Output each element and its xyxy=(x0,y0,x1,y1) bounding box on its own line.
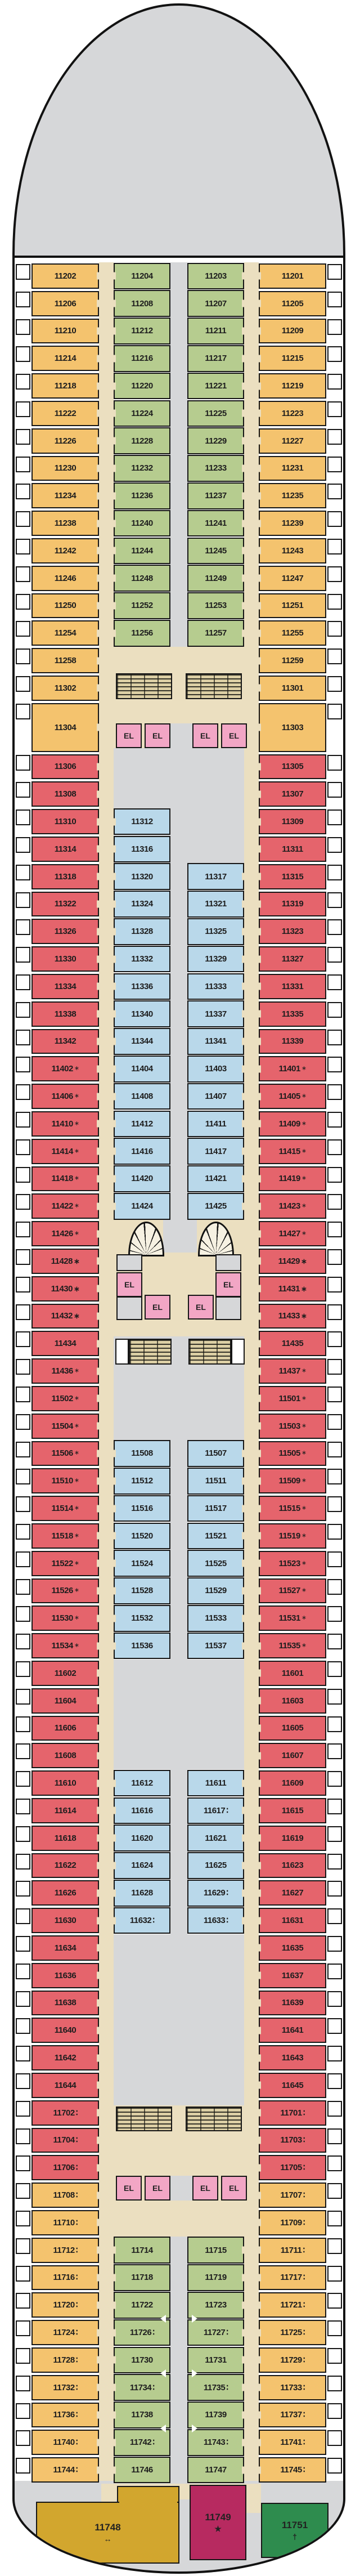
cabin: 11216 xyxy=(114,345,170,372)
cabin: 11426∗ xyxy=(31,1221,99,1246)
cabin-symbol-ast2: ∗ xyxy=(74,1285,79,1293)
cabin: 11502∗ xyxy=(31,1386,99,1411)
balcony xyxy=(16,319,30,335)
cabin-number: 11526 xyxy=(51,1586,73,1595)
cabin-symbol-ast: ∗ xyxy=(74,1505,79,1511)
cabin-number: 11247 xyxy=(282,574,303,583)
cabin-number: 11316 xyxy=(131,845,152,853)
cabin-number: 11605 xyxy=(282,1724,303,1732)
balcony xyxy=(327,1606,342,1622)
cabin: 11638 xyxy=(31,1991,99,2016)
cabin: 11601 xyxy=(259,1661,326,1686)
balcony xyxy=(327,865,342,880)
cabin-symbol-ast: ∗ xyxy=(74,1175,79,1182)
balcony xyxy=(16,2320,30,2336)
cabin: 11256 xyxy=(114,620,170,647)
cabin: 11522∗ xyxy=(31,1551,99,1576)
cabin-symbol-bidir: ↔ xyxy=(104,2534,112,2543)
cabin-symbol-ast: ∗ xyxy=(301,1203,307,1209)
cabin-number: 11741 xyxy=(280,2438,301,2447)
cabin: 11234 xyxy=(31,483,99,508)
balcony xyxy=(16,1689,30,1705)
cabin: 11707∶ xyxy=(259,2183,326,2208)
balcony xyxy=(327,2155,342,2171)
cabin-number: 11239 xyxy=(282,519,303,527)
cabin: 11211 xyxy=(187,317,244,345)
balcony xyxy=(327,1496,342,1512)
stairs xyxy=(188,1339,231,1365)
cabin-symbol-ast: ∗ xyxy=(301,1231,307,1237)
balcony xyxy=(16,1771,30,1787)
cabin-number: 11252 xyxy=(131,601,152,610)
cabin-number: 11726 xyxy=(130,2328,151,2337)
cabin-number: 11257 xyxy=(205,629,226,637)
cabin-number: 11235 xyxy=(282,491,303,500)
balcony xyxy=(327,1799,342,1814)
cabin: 11231 xyxy=(259,456,326,481)
cabin: 11253 xyxy=(187,592,244,619)
cabin: 11704∶ xyxy=(31,2128,99,2153)
cabin: 11434 xyxy=(31,1331,99,1356)
cabin-number: 11409 xyxy=(278,1120,300,1128)
balcony xyxy=(327,1524,342,1540)
cabin: 11232 xyxy=(114,455,170,482)
cabin-number: 11509 xyxy=(278,1477,300,1485)
cabin-number: 11206 xyxy=(55,299,76,308)
stairs xyxy=(116,2107,172,2131)
balcony xyxy=(327,2376,342,2391)
cabin-number: 11214 xyxy=(55,354,76,363)
cabin-symbol-berth: ∶ xyxy=(76,2219,78,2227)
cabin: 11252 xyxy=(114,592,170,619)
balcony xyxy=(327,1881,342,1897)
balcony xyxy=(327,511,342,527)
cabin: 11624 xyxy=(114,1852,170,1879)
cabin: 11415∗ xyxy=(259,1139,326,1164)
cabin: 11645 xyxy=(259,2073,326,2098)
balcony xyxy=(16,401,30,417)
cabin-number: 11317 xyxy=(205,873,226,881)
cabin-number: 11506 xyxy=(51,1449,73,1457)
cabin-number: 11714 xyxy=(131,2246,152,2255)
cabin-number: 11326 xyxy=(55,927,76,936)
cabin-number: 11740 xyxy=(53,2438,74,2447)
cabin: 11207 xyxy=(187,290,244,317)
balcony xyxy=(327,1167,342,1183)
cabin-number: 11707 xyxy=(280,2191,301,2199)
balcony xyxy=(16,865,30,880)
cabin: 11608 xyxy=(31,1743,99,1768)
balcony xyxy=(16,1139,30,1155)
cabin-number: 11514 xyxy=(51,1504,73,1513)
cabin-symbol-ast: ∗ xyxy=(74,1587,79,1594)
balcony xyxy=(16,2211,30,2226)
cabin-number: 11226 xyxy=(55,437,76,445)
balcony xyxy=(16,2293,30,2309)
cabin: 11516 xyxy=(114,1495,170,1522)
cabin-number: 11404 xyxy=(131,1065,152,1073)
cabin: 11431∗ xyxy=(259,1276,326,1302)
balcony xyxy=(327,1139,342,1155)
cabin-symbol-ast: ∗ xyxy=(301,1450,307,1456)
cabin: 11742∶ xyxy=(114,2429,170,2456)
cabin: 11702∶ xyxy=(31,2100,99,2126)
stairs xyxy=(186,2107,242,2131)
cabin: 11607 xyxy=(259,1743,326,1768)
cabin-symbol-berth: ∶ xyxy=(76,2301,78,2309)
cabin: 11527∗ xyxy=(259,1578,326,1604)
cabin-symbol-berth: ∶ xyxy=(152,2438,154,2447)
cabin-symbol-ast: ∗ xyxy=(301,1533,307,1539)
cabin-number: 11631 xyxy=(282,1916,303,1925)
cabin: 11251 xyxy=(259,593,326,619)
elevator: EL xyxy=(116,2176,142,2201)
utility-room xyxy=(116,1254,142,1271)
cabin: 11334 xyxy=(31,974,99,999)
cabin-symbol-berth: ∶ xyxy=(303,2219,305,2227)
cabin-symbol-ast: ∗ xyxy=(301,1423,307,1429)
balcony xyxy=(327,1304,342,1320)
cabin: 11241 xyxy=(187,510,244,537)
balcony xyxy=(16,676,30,692)
cabin-symbol-ast: ∗ xyxy=(74,1093,79,1099)
cabin: 11407 xyxy=(187,1083,244,1110)
cabin-number: 11639 xyxy=(282,1998,303,2007)
cabin: 11633∶ xyxy=(187,1907,244,1934)
interior-void xyxy=(114,1660,244,1769)
cabin-number: 11628 xyxy=(131,1889,152,1897)
cabin: 11618 xyxy=(31,1826,99,1851)
balcony xyxy=(327,2046,342,2061)
cabin: 11712∶ xyxy=(31,2238,99,2263)
balcony xyxy=(16,919,30,935)
cabin: 11536 xyxy=(114,1633,170,1660)
cabin-number: 11725 xyxy=(280,2328,301,2337)
cabin: 11428∗ xyxy=(31,1249,99,1274)
utility-room xyxy=(215,1254,241,1271)
cabin-number: 11704 xyxy=(53,2136,74,2144)
cabin-number: 11237 xyxy=(205,491,226,500)
cabin-number: 11211 xyxy=(205,327,227,335)
cabin: 11511 xyxy=(187,1468,244,1495)
balcony xyxy=(16,264,30,280)
cabin: 11635 xyxy=(259,1935,326,1961)
cabin-symbol-star: ★ xyxy=(214,2524,222,2534)
balcony xyxy=(16,346,30,362)
cabin: 11243 xyxy=(259,538,326,563)
balcony xyxy=(16,1442,30,1457)
cabin-number: 11516 xyxy=(131,1504,152,1513)
cabin-symbol-berth: ∶ xyxy=(76,2246,78,2255)
cabin: 11640 xyxy=(31,2018,99,2043)
cabin: 11703∶ xyxy=(259,2128,326,2153)
cabin: 11642 xyxy=(31,2045,99,2070)
balcony xyxy=(16,1908,30,1924)
stairs xyxy=(116,673,172,699)
cabin-symbol-ast: ∗ xyxy=(74,1368,79,1374)
cabin-number: 11419 xyxy=(278,1174,300,1183)
cabin-number: 11230 xyxy=(55,464,76,472)
cabin-number: 11315 xyxy=(282,873,303,881)
cabin: 11420 xyxy=(114,1165,170,1192)
cabin-symbol-ast: ∗ xyxy=(74,1615,79,1621)
cabin-number: 11314 xyxy=(55,845,76,853)
cabin-number: 11434 xyxy=(55,1339,76,1348)
cabin: 11258 xyxy=(31,648,99,673)
balcony xyxy=(16,2101,30,2117)
cabin: 11322 xyxy=(31,892,99,917)
cabin: 11340 xyxy=(114,1000,170,1027)
cabin: 11625 xyxy=(187,1852,244,1879)
balcony xyxy=(327,1551,342,1567)
balcony xyxy=(16,1030,30,1045)
cabin: 11338 xyxy=(31,1001,99,1027)
cabin-number: 11431 xyxy=(278,1285,300,1293)
balcony xyxy=(16,1057,30,1072)
cabin-number: 11436 xyxy=(51,1367,73,1375)
cabin-number: 11220 xyxy=(131,382,152,390)
cabin-number: 11241 xyxy=(205,519,226,527)
cabin: 11701∶ xyxy=(259,2100,326,2126)
cabin: 11740∶ xyxy=(31,2430,99,2455)
cabin: 11201 xyxy=(259,263,326,289)
cabin: 11317 xyxy=(187,863,244,890)
cabin-number: 11505 xyxy=(278,1449,300,1457)
cabin: 11240 xyxy=(114,510,170,537)
cabin-number: 11706 xyxy=(53,2163,74,2172)
cabin: 11408 xyxy=(114,1083,170,1110)
cabin: 11323 xyxy=(259,919,326,944)
cabin-number: 11227 xyxy=(282,437,303,445)
cabin-number: 11427 xyxy=(278,1229,300,1238)
cabin-number: 11337 xyxy=(205,1010,226,1018)
cabin-number: 11602 xyxy=(55,1669,76,1678)
cabin: 11636 xyxy=(31,1963,99,1988)
cabin-number: 11642 xyxy=(55,2054,76,2062)
cabin-number: 11327 xyxy=(282,955,303,963)
cabin-number: 11721 xyxy=(280,2301,301,2309)
cabin-symbol-ast: ∗ xyxy=(74,1423,79,1429)
cabin: 11637 xyxy=(259,1963,326,1988)
cabin-number: 11303 xyxy=(282,723,303,732)
cabin: 11743∶ xyxy=(187,2429,244,2456)
cabin: 11523∗ xyxy=(259,1551,326,1576)
cabin-symbol-berth: ∶ xyxy=(303,2273,305,2282)
cabin-number: 11523 xyxy=(278,1559,300,1568)
balcony xyxy=(16,1331,30,1347)
balcony xyxy=(327,2348,342,2364)
cabin-number: 11341 xyxy=(205,1037,226,1045)
cabin-number: 11229 xyxy=(205,437,226,445)
balcony xyxy=(16,892,30,908)
cabin-number: 11242 xyxy=(55,547,76,555)
balcony xyxy=(16,292,30,307)
cabin: 11514∗ xyxy=(31,1496,99,1521)
cabin-number: 11311 xyxy=(282,845,303,853)
cabin-number: 11218 xyxy=(55,382,76,390)
cabin-number: 11744 xyxy=(53,2466,74,2474)
balcony xyxy=(327,539,342,554)
cabin-number: 11323 xyxy=(282,927,303,936)
cabin-number: 11248 xyxy=(131,574,152,583)
elevator: EL xyxy=(116,723,142,748)
cabin: 11535∗ xyxy=(259,1633,326,1658)
cabin-number: 11608 xyxy=(55,1751,76,1760)
cabin-number: 11644 xyxy=(55,2081,76,2090)
cabin-number: 11336 xyxy=(131,982,152,991)
cabin: 11402∗ xyxy=(31,1056,99,1081)
balcony xyxy=(327,1414,342,1430)
cabin: 11242 xyxy=(31,538,99,563)
cabin-number: 11640 xyxy=(55,2026,76,2034)
cabin-number: 11322 xyxy=(55,900,76,908)
cabin: 11422∗ xyxy=(31,1193,99,1219)
elevator: EL xyxy=(116,1272,142,1297)
balcony xyxy=(16,621,30,637)
balcony xyxy=(327,2101,342,2117)
cabin-number: 11617 xyxy=(204,1806,225,1815)
cabin-number: 11205 xyxy=(282,299,303,308)
cabin: 11531∗ xyxy=(259,1605,326,1631)
cabin-number: 11619 xyxy=(282,1834,303,1842)
cabin-number: 11236 xyxy=(131,491,152,500)
cabin-symbol-ast: ∗ xyxy=(301,1148,307,1155)
cabin-symbol-berth: ∶ xyxy=(76,2438,78,2447)
elevator: EL xyxy=(145,723,170,748)
cabin-number: 11249 xyxy=(205,574,226,583)
cabin-number: 11745 xyxy=(280,2466,301,2474)
cabin: 11639 xyxy=(259,1991,326,2016)
cabin: 11734∶ xyxy=(114,2374,170,2401)
cabin-symbol-ast: ∗ xyxy=(74,1396,79,1402)
cabin-number: 11301 xyxy=(282,684,303,692)
cabin-number: 11749 xyxy=(205,2512,231,2523)
cabin: 11311 xyxy=(259,837,326,862)
balcony xyxy=(327,1084,342,1100)
cabin-number: 11626 xyxy=(55,1889,76,1897)
cabin: 11528 xyxy=(114,1577,170,1604)
elevator: EL xyxy=(192,2176,218,2201)
balcony xyxy=(16,1606,30,1622)
cabin-number: 11421 xyxy=(205,1174,226,1183)
cabin-number: 11209 xyxy=(282,327,303,335)
cabin: 11344 xyxy=(114,1028,170,1055)
cabin-symbol-ast2: ∗ xyxy=(74,1312,79,1320)
balcony xyxy=(327,1579,342,1595)
cabin: 11628 xyxy=(114,1880,170,1907)
cabin-number: 11607 xyxy=(282,1751,303,1760)
balcony xyxy=(16,1277,30,1293)
cabin-number: 11219 xyxy=(282,382,303,390)
cabin-number: 11621 xyxy=(205,1834,226,1842)
cabin: 11214 xyxy=(31,346,99,371)
cabin-number: 11310 xyxy=(55,817,76,826)
cabin: 11309 xyxy=(259,809,326,834)
cabin: 11223 xyxy=(259,401,326,426)
cabin: 11230 xyxy=(31,456,99,481)
cabin-number: 11312 xyxy=(131,817,152,826)
cabin: 11721∶ xyxy=(259,2292,326,2318)
cabin-symbol-ast: ∗ xyxy=(301,1560,307,1567)
cabin-number: 11207 xyxy=(205,299,226,308)
cabin: 11320 xyxy=(114,863,170,890)
cabin: 11518∗ xyxy=(31,1523,99,1549)
balcony xyxy=(327,2293,342,2309)
balcony xyxy=(16,1387,30,1402)
cabin: 11410∗ xyxy=(31,1111,99,1137)
cabin: 11433∗ xyxy=(259,1304,326,1329)
cabin: 11219 xyxy=(259,373,326,399)
cabin: 11206 xyxy=(31,291,99,316)
cabin: 11430∗ xyxy=(31,1276,99,1302)
cabin: 11732∶ xyxy=(31,2375,99,2400)
cabin: 11436∗ xyxy=(31,1358,99,1384)
cabin-number: 11331 xyxy=(282,982,303,991)
cabin-number: 11708 xyxy=(53,2191,74,2199)
cabin-symbol-berth: ∶ xyxy=(76,2356,78,2364)
cabin-number: 11305 xyxy=(282,762,303,771)
cabin: 11239 xyxy=(259,511,326,536)
cabin: 11629∶ xyxy=(187,1880,244,1907)
cabin: 11720∶ xyxy=(31,2292,99,2318)
cabin-number: 11751 xyxy=(282,2520,308,2531)
cabin: 11526∗ xyxy=(31,1578,99,1604)
stair-landing xyxy=(115,1339,129,1365)
cabin-number: 11732 xyxy=(53,2383,74,2392)
balcony xyxy=(16,1634,30,1649)
balcony xyxy=(16,1112,30,1128)
cabin-symbol-berth: ∶ xyxy=(226,1806,228,1815)
cabin: 11738 xyxy=(114,2401,170,2429)
cabin-number: 11712 xyxy=(53,2246,74,2255)
elevator-lobby-gap xyxy=(170,2176,192,2201)
cabin-number: 11705 xyxy=(280,2163,301,2172)
cabin: 11711∶ xyxy=(259,2238,326,2263)
cabin-symbol-berth: ∶ xyxy=(76,2383,78,2392)
cabin-symbol-berth: ∶ xyxy=(152,1916,154,1925)
cabin-symbol-ast: ∗ xyxy=(74,1450,79,1456)
cabin-symbol-berth: ∶ xyxy=(303,2163,305,2172)
cabin: 11529 xyxy=(187,1577,244,1604)
cabin-number: 11637 xyxy=(282,1971,303,1980)
cabin-number: 11519 xyxy=(278,1532,300,1540)
cabin: 11324 xyxy=(114,891,170,918)
cabin: 11417 xyxy=(187,1138,244,1165)
cabin-symbol-ast: ∗ xyxy=(301,1396,307,1402)
cabin-symbol-berth: ∶ xyxy=(303,2438,305,2447)
cabin-number: 11737 xyxy=(280,2410,301,2419)
balcony xyxy=(327,1112,342,1128)
cabin-number: 11259 xyxy=(282,656,303,665)
cabin-number: 11246 xyxy=(55,574,76,583)
balcony xyxy=(16,2266,30,2282)
cabin: 11326 xyxy=(31,919,99,944)
cabin-symbol-ast: ∗ xyxy=(74,1066,79,1072)
cabin-number: 11251 xyxy=(282,601,303,610)
balcony xyxy=(327,1359,342,1375)
cabin: 11401∗ xyxy=(259,1056,326,1081)
cabin-number: 11625 xyxy=(205,1861,226,1870)
cabin-number: 11520 xyxy=(131,1532,152,1540)
cabin: 11331 xyxy=(259,974,326,999)
cabin-symbol-cross: † xyxy=(292,2532,297,2541)
cabin-number: 11332 xyxy=(131,955,152,963)
cabin-symbol-ast: ∗ xyxy=(301,1615,307,1621)
suite-cabin: 11751† xyxy=(261,2503,328,2558)
cabin-number: 11340 xyxy=(131,1010,152,1018)
cabin-number: 11344 xyxy=(131,1037,152,1045)
cabin-number: 11747 xyxy=(205,2466,226,2474)
